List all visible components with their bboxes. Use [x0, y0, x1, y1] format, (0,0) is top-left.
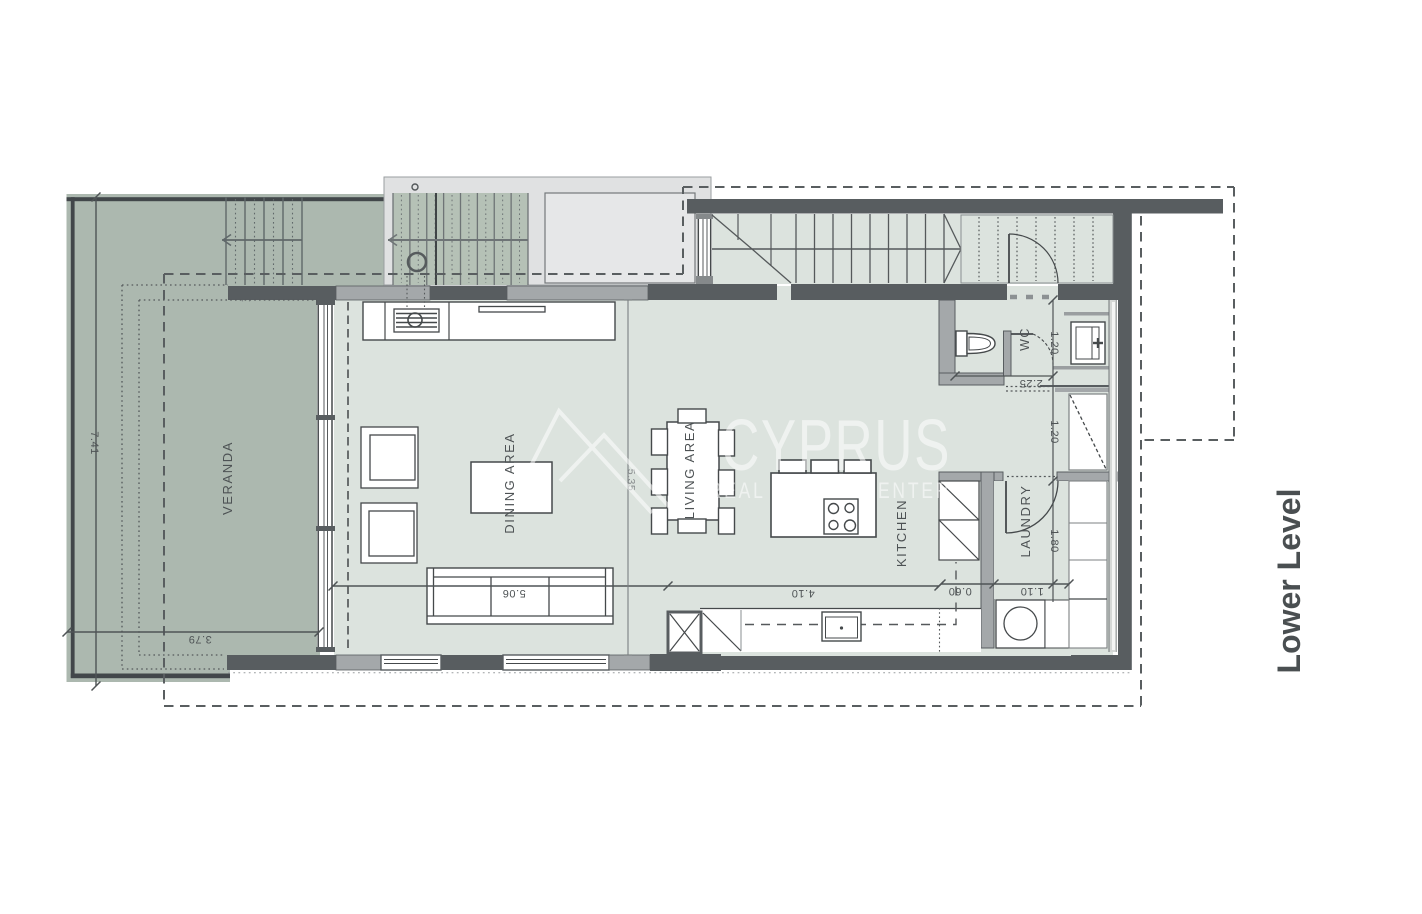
svg-text:4.10: 4.10: [791, 587, 814, 599]
svg-text:1.80: 1.80: [1048, 529, 1060, 552]
svg-text:DINING AREA: DINING AREA: [502, 432, 517, 533]
svg-text:1.10: 1.10: [1020, 585, 1043, 597]
svg-text:CYPRUS: CYPRUS: [721, 406, 951, 486]
svg-text:KITCHEN: KITCHEN: [894, 499, 909, 567]
svg-text:REAL ESTATE CENTER: REAL ESTATE CENTER: [709, 479, 952, 503]
svg-text:2.25: 2.25: [1019, 377, 1042, 389]
svg-text:3.79: 3.79: [188, 633, 211, 645]
svg-text:VERANDA: VERANDA: [220, 441, 235, 515]
svg-text:7.41: 7.41: [88, 431, 100, 454]
svg-text:1.20: 1.20: [1048, 420, 1060, 443]
svg-text:0.60: 0.60: [948, 585, 971, 597]
svg-text:1.20: 1.20: [1048, 331, 1060, 354]
svg-text:LAUNDRY: LAUNDRY: [1018, 484, 1033, 557]
svg-text:WC: WC: [1018, 327, 1032, 351]
svg-text:5.06: 5.06: [502, 587, 525, 599]
svg-text:Lower Level: Lower Level: [1271, 489, 1307, 674]
svg-text:LIVING AREA: LIVING AREA: [682, 421, 697, 520]
